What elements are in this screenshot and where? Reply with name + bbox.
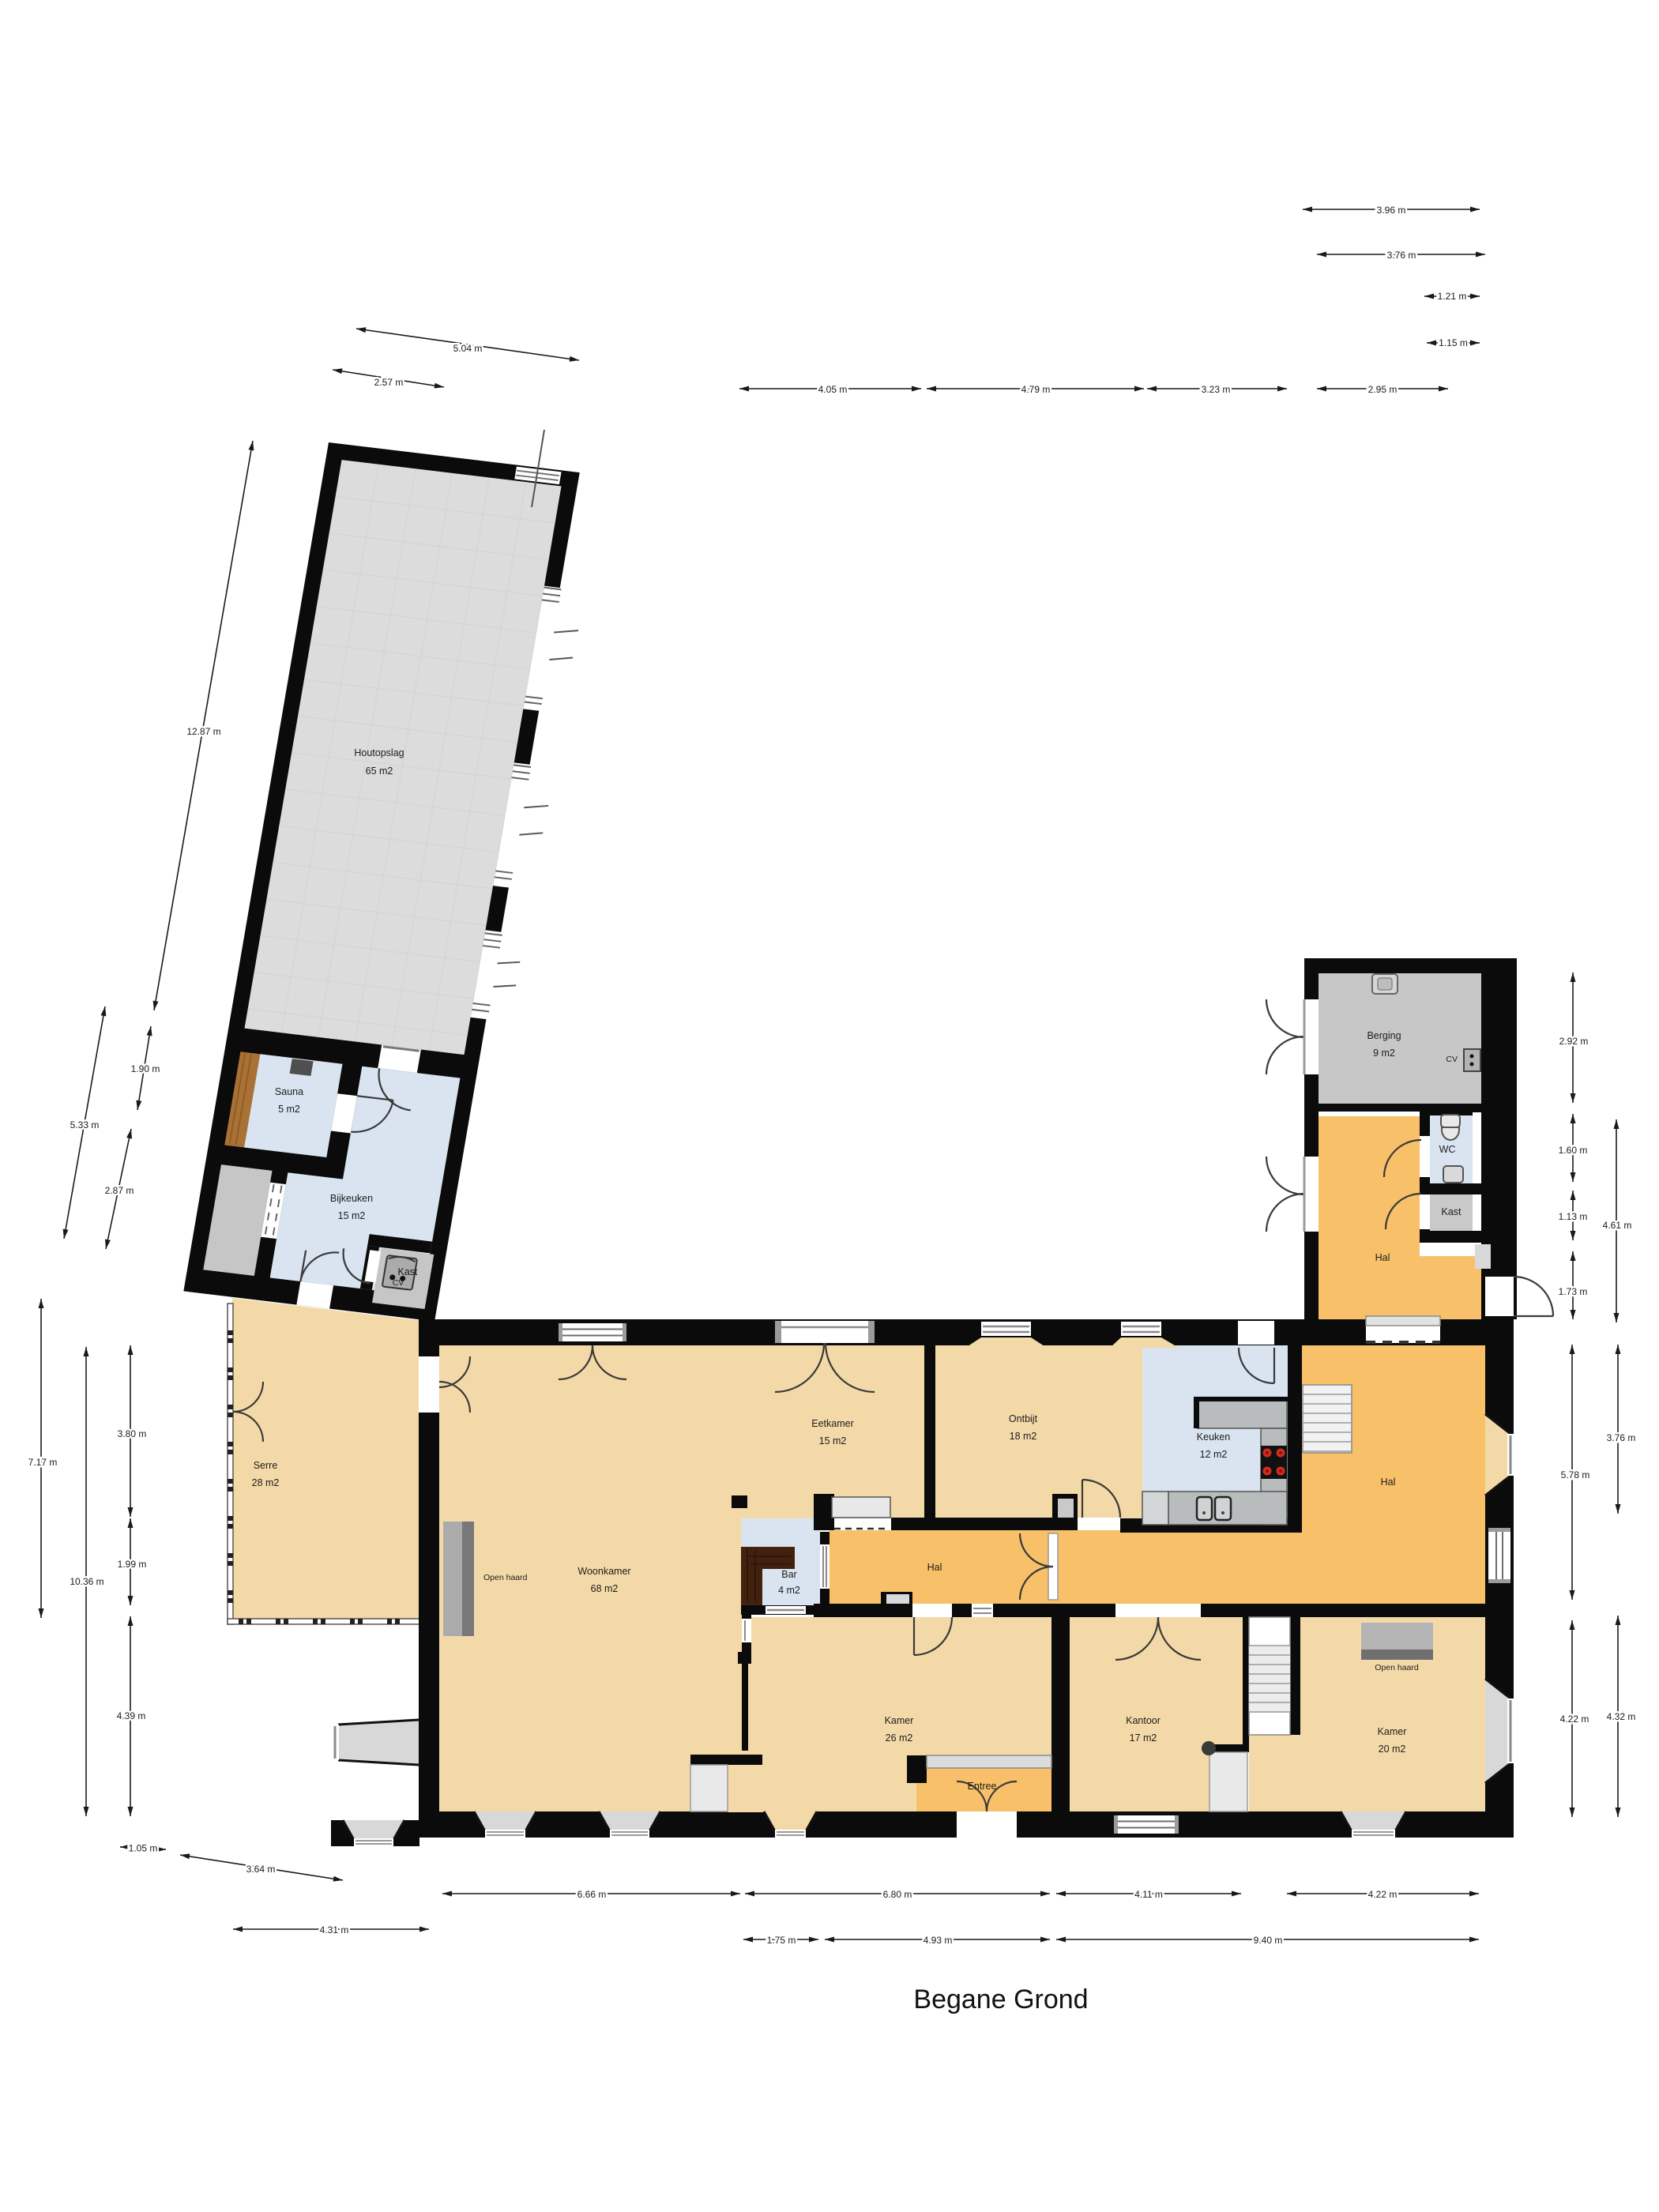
svg-text:WC: WC bbox=[1439, 1144, 1456, 1155]
svg-text:10.36 m: 10.36 m bbox=[70, 1576, 103, 1587]
svg-text:CV: CV bbox=[393, 1278, 404, 1288]
svg-text:Kantoor: Kantoor bbox=[1126, 1715, 1161, 1726]
svg-text:Open haard: Open haard bbox=[1375, 1663, 1419, 1672]
svg-text:68 m2: 68 m2 bbox=[591, 1583, 619, 1594]
svg-text:1.15 m: 1.15 m bbox=[1439, 337, 1468, 348]
svg-text:2.57 m: 2.57 m bbox=[374, 377, 404, 388]
svg-text:18 m2: 18 m2 bbox=[1010, 1431, 1037, 1442]
svg-text:3.76 m: 3.76 m bbox=[1607, 1432, 1636, 1443]
svg-text:15 m2: 15 m2 bbox=[819, 1435, 847, 1446]
svg-text:9.40 m: 9.40 m bbox=[1254, 1935, 1283, 1946]
svg-text:Open haard: Open haard bbox=[483, 1573, 528, 1582]
svg-text:1.75 m: 1.75 m bbox=[767, 1935, 796, 1946]
svg-text:3.96 m: 3.96 m bbox=[1377, 205, 1406, 216]
svg-text:4.22 m: 4.22 m bbox=[1560, 1714, 1589, 1725]
svg-text:Woonkamer: Woonkamer bbox=[577, 1566, 630, 1577]
svg-text:Serre: Serre bbox=[254, 1460, 278, 1471]
svg-text:1.21 m: 1.21 m bbox=[1438, 291, 1467, 302]
svg-text:Bar: Bar bbox=[781, 1569, 796, 1580]
svg-text:28 m2: 28 m2 bbox=[252, 1477, 280, 1488]
svg-text:Eetkamer: Eetkamer bbox=[811, 1418, 854, 1429]
svg-text:6.66 m: 6.66 m bbox=[577, 1889, 607, 1900]
svg-text:7.17 m: 7.17 m bbox=[28, 1457, 58, 1468]
svg-text:Ontbijt: Ontbijt bbox=[1009, 1413, 1038, 1424]
svg-text:3.64 m: 3.64 m bbox=[246, 1864, 276, 1875]
svg-text:4.61 m: 4.61 m bbox=[1603, 1220, 1632, 1231]
svg-text:26 m2: 26 m2 bbox=[886, 1732, 913, 1744]
svg-text:4.93 m: 4.93 m bbox=[924, 1935, 953, 1946]
svg-text:3.23 m: 3.23 m bbox=[1202, 384, 1231, 395]
svg-text:3.76 m: 3.76 m bbox=[1387, 250, 1416, 261]
svg-text:1.13 m: 1.13 m bbox=[1559, 1211, 1588, 1222]
svg-text:Houtopslag: Houtopslag bbox=[354, 747, 404, 758]
svg-text:4.22 m: 4.22 m bbox=[1368, 1889, 1398, 1900]
svg-text:Kamer: Kamer bbox=[1378, 1726, 1407, 1737]
svg-text:Keuken: Keuken bbox=[1197, 1431, 1230, 1443]
svg-text:1.99 m: 1.99 m bbox=[118, 1559, 147, 1570]
svg-text:1.73 m: 1.73 m bbox=[1559, 1286, 1588, 1297]
svg-text:Berging: Berging bbox=[1367, 1030, 1401, 1041]
svg-text:1.05 m: 1.05 m bbox=[129, 1843, 158, 1854]
svg-text:4.39 m: 4.39 m bbox=[117, 1710, 146, 1721]
svg-text:12 m2: 12 m2 bbox=[1200, 1449, 1228, 1460]
svg-text:2.95 m: 2.95 m bbox=[1368, 384, 1398, 395]
svg-text:Begane Grond: Begane Grond bbox=[913, 1984, 1088, 2014]
svg-text:Entree: Entree bbox=[968, 1781, 997, 1792]
svg-text:5.04 m: 5.04 m bbox=[453, 343, 483, 354]
svg-text:4.05 m: 4.05 m bbox=[818, 384, 848, 395]
svg-text:Kast: Kast bbox=[1441, 1206, 1461, 1217]
svg-text:15 m2: 15 m2 bbox=[338, 1210, 366, 1221]
svg-text:Hal: Hal bbox=[1381, 1477, 1396, 1488]
svg-text:6.80 m: 6.80 m bbox=[883, 1889, 912, 1900]
svg-text:CV: CV bbox=[1446, 1055, 1458, 1064]
svg-text:2.92 m: 2.92 m bbox=[1559, 1036, 1589, 1047]
svg-text:4.31 m: 4.31 m bbox=[320, 1924, 349, 1935]
svg-text:65 m2: 65 m2 bbox=[366, 766, 393, 777]
svg-text:Kast: Kast bbox=[397, 1266, 418, 1277]
svg-text:3.80 m: 3.80 m bbox=[118, 1428, 147, 1439]
svg-text:4.11 m: 4.11 m bbox=[1134, 1889, 1163, 1900]
svg-text:Sauna: Sauna bbox=[275, 1086, 303, 1097]
svg-text:5 m2: 5 m2 bbox=[278, 1104, 300, 1115]
svg-text:Bijkeuken: Bijkeuken bbox=[330, 1193, 373, 1204]
svg-text:1.60 m: 1.60 m bbox=[1559, 1145, 1588, 1156]
svg-text:Kamer: Kamer bbox=[885, 1715, 914, 1726]
svg-text:5.33 m: 5.33 m bbox=[70, 1119, 100, 1130]
svg-text:17 m2: 17 m2 bbox=[1130, 1732, 1157, 1744]
svg-text:Hal: Hal bbox=[927, 1562, 942, 1573]
svg-text:Hal: Hal bbox=[1375, 1252, 1390, 1263]
svg-text:12.87 m: 12.87 m bbox=[186, 726, 220, 737]
svg-text:5.78 m: 5.78 m bbox=[1561, 1469, 1590, 1480]
svg-text:4 m2: 4 m2 bbox=[778, 1585, 800, 1596]
svg-text:4.32 m: 4.32 m bbox=[1607, 1711, 1636, 1722]
svg-text:1.90 m: 1.90 m bbox=[131, 1063, 160, 1074]
svg-text:2.87 m: 2.87 m bbox=[105, 1185, 134, 1196]
svg-text:9 m2: 9 m2 bbox=[1373, 1048, 1395, 1059]
svg-text:4.79 m: 4.79 m bbox=[1021, 384, 1051, 395]
svg-text:20 m2: 20 m2 bbox=[1379, 1744, 1406, 1755]
